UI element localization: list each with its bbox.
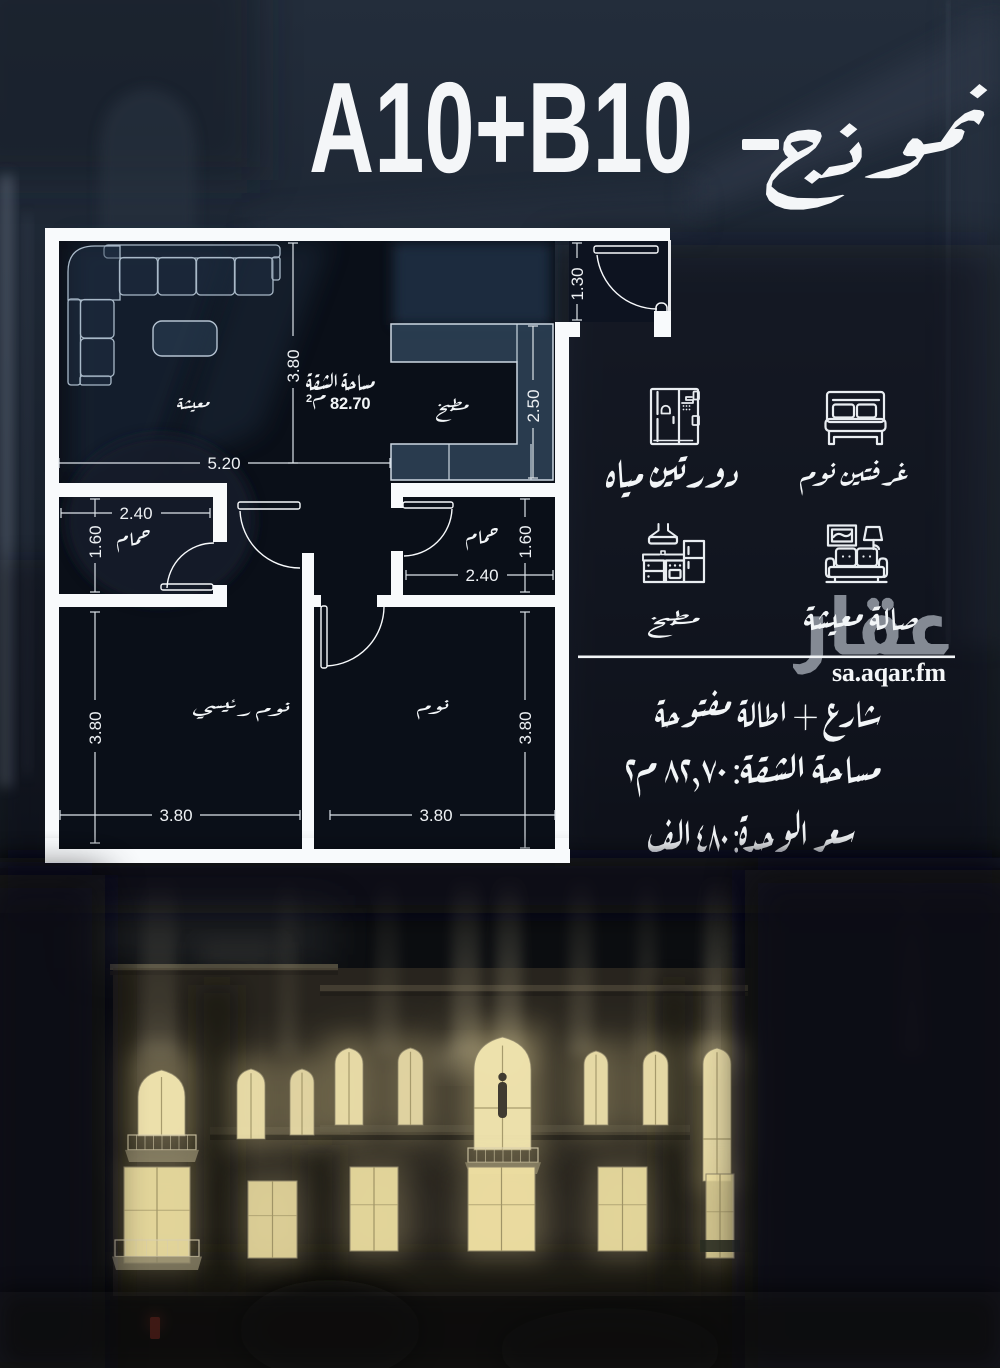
svg-text:3.80: 3.80 — [284, 349, 303, 382]
svg-text:A10+B10: A10+B10 — [309, 55, 693, 200]
svg-text:2.50: 2.50 — [524, 389, 543, 422]
svg-text:3.80: 3.80 — [86, 711, 105, 744]
svg-text:2.40: 2.40 — [119, 504, 152, 523]
svg-text:82.70: 82.70 — [330, 395, 370, 413]
svg-text:1.60: 1.60 — [516, 525, 535, 558]
svg-text:3.80: 3.80 — [419, 806, 452, 825]
svg-text:2.40: 2.40 — [465, 566, 498, 585]
svg-text:2: 2 — [306, 393, 312, 405]
svg-text:1.60: 1.60 — [86, 525, 105, 558]
svg-text:5.20: 5.20 — [207, 454, 240, 473]
svg-text:3.80: 3.80 — [159, 806, 192, 825]
svg-text:1.30: 1.30 — [568, 267, 587, 300]
svg-text:sa.aqar.fm: sa.aqar.fm — [832, 658, 946, 687]
svg-text:3.80: 3.80 — [516, 711, 535, 744]
